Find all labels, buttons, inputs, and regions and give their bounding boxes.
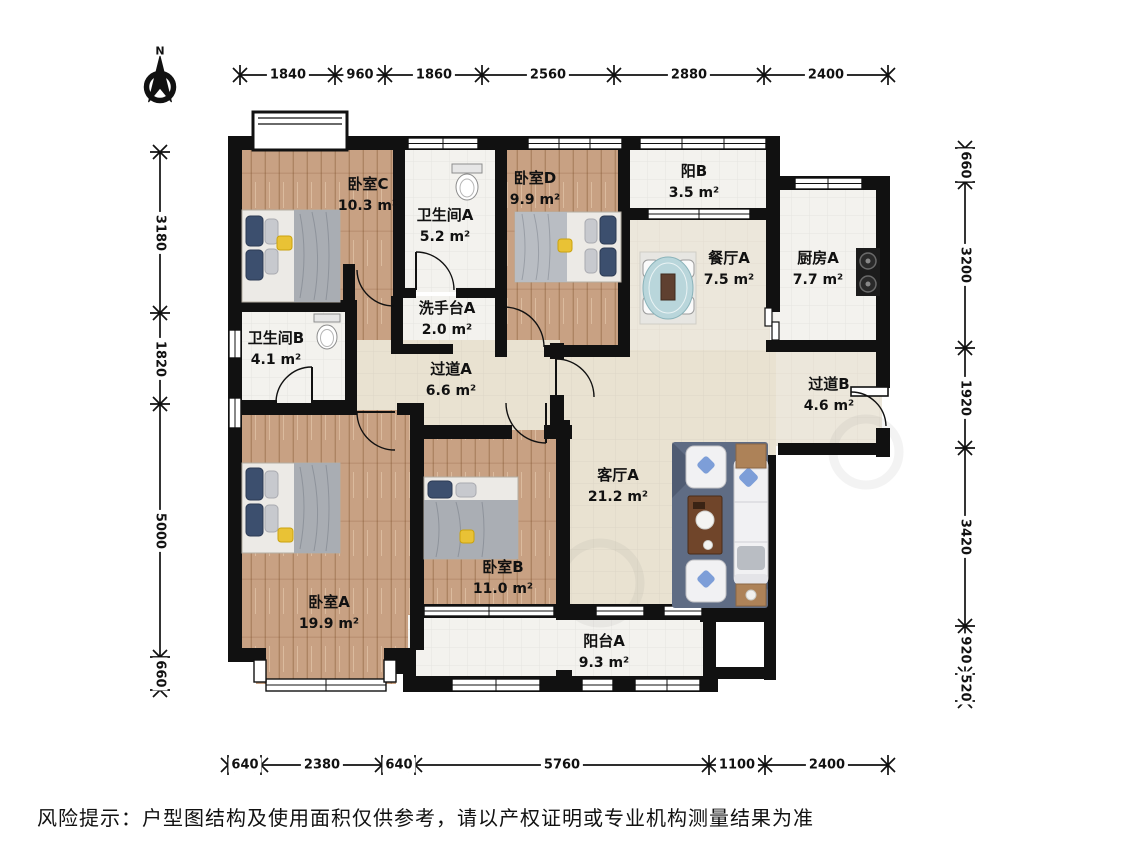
dim-top-3: 2560 xyxy=(527,68,569,83)
dim-top-5: 2400 xyxy=(805,68,847,83)
room-label-bedroom-a: 卧室A 19.9 m² xyxy=(299,591,359,635)
compass-icon xyxy=(147,56,174,102)
room-label-hallway-b: 过道B 4.6 m² xyxy=(804,373,854,417)
room-label-bedroom-b: 卧室B 11.0 m² xyxy=(473,556,533,600)
room-label-balcony-b: 阳B 3.5 m² xyxy=(669,160,719,204)
dim-bottom-3: 5760 xyxy=(541,758,583,773)
dim-right-2: 1920 xyxy=(958,377,973,419)
dim-left-3: 660 xyxy=(153,657,168,690)
dim-top-0: 1840 xyxy=(267,68,309,83)
dim-right-3: 3420 xyxy=(958,516,973,558)
bay-window-bedroom-c xyxy=(253,112,347,150)
dim-left-2: 5000 xyxy=(153,510,168,552)
bed-bedroom-a xyxy=(242,463,340,553)
room-label-bedroom-c: 卧室C 10.3 m² xyxy=(338,173,398,217)
dim-bottom-1: 2380 xyxy=(301,758,343,773)
dim-left-1: 1820 xyxy=(153,338,168,380)
dim-bottom-0: 640 xyxy=(228,758,261,773)
dim-top-2: 1860 xyxy=(413,68,455,83)
dim-top-1: 960 xyxy=(343,68,376,83)
bed-bedroom-b xyxy=(424,477,518,559)
dim-top-4: 2880 xyxy=(668,68,710,83)
stove xyxy=(856,248,880,296)
disclaimer-text: 风险提示：户型图结构及使用面积仅供参考，请以产权证明或专业机构测量结果为准 xyxy=(37,802,814,831)
compass-north-label: N xyxy=(155,45,164,58)
dim-bottom-5: 2400 xyxy=(806,758,848,773)
dim-left-0: 3180 xyxy=(153,212,168,254)
room-label-balcony-a: 阳台A 9.3 m² xyxy=(579,630,629,674)
dining-table-set xyxy=(640,252,696,324)
room-label-hallway-a: 过道A 6.6 m² xyxy=(426,358,476,402)
room-label-bedroom-d: 卧室D 9.9 m² xyxy=(510,167,560,211)
bed-bedroom-d xyxy=(515,212,621,282)
dim-bottom-4: 1100 xyxy=(716,758,758,773)
floorplan-svg xyxy=(0,0,1125,844)
floorplan-page: 卧室C 10.3 m² 卫生间A 5.2 m² 卧室D 9.9 m² 阳B 3.… xyxy=(0,0,1125,844)
room-label-wash-a: 洗手台A 2.0 m² xyxy=(419,297,476,341)
bed-bedroom-c xyxy=(242,210,340,302)
living-room-set xyxy=(672,442,768,608)
dim-right-0: 660 xyxy=(958,148,973,181)
dim-right-5: 520 xyxy=(958,671,973,704)
dim-right-1: 3200 xyxy=(958,244,973,286)
room-label-bath-a: 卫生间A 5.2 m² xyxy=(417,204,474,248)
side-table-top xyxy=(736,444,766,468)
room-label-bath-b: 卫生间B 4.1 m² xyxy=(248,327,304,371)
room-label-dining-a: 餐厅A 7.5 m² xyxy=(704,247,754,291)
room-label-living-a: 客厅A 21.2 m² xyxy=(588,464,648,508)
dim-right-4: 920 xyxy=(958,633,973,666)
room-label-kitchen-a: 厨房A 7.7 m² xyxy=(793,247,843,291)
dim-bottom-2: 640 xyxy=(382,758,415,773)
